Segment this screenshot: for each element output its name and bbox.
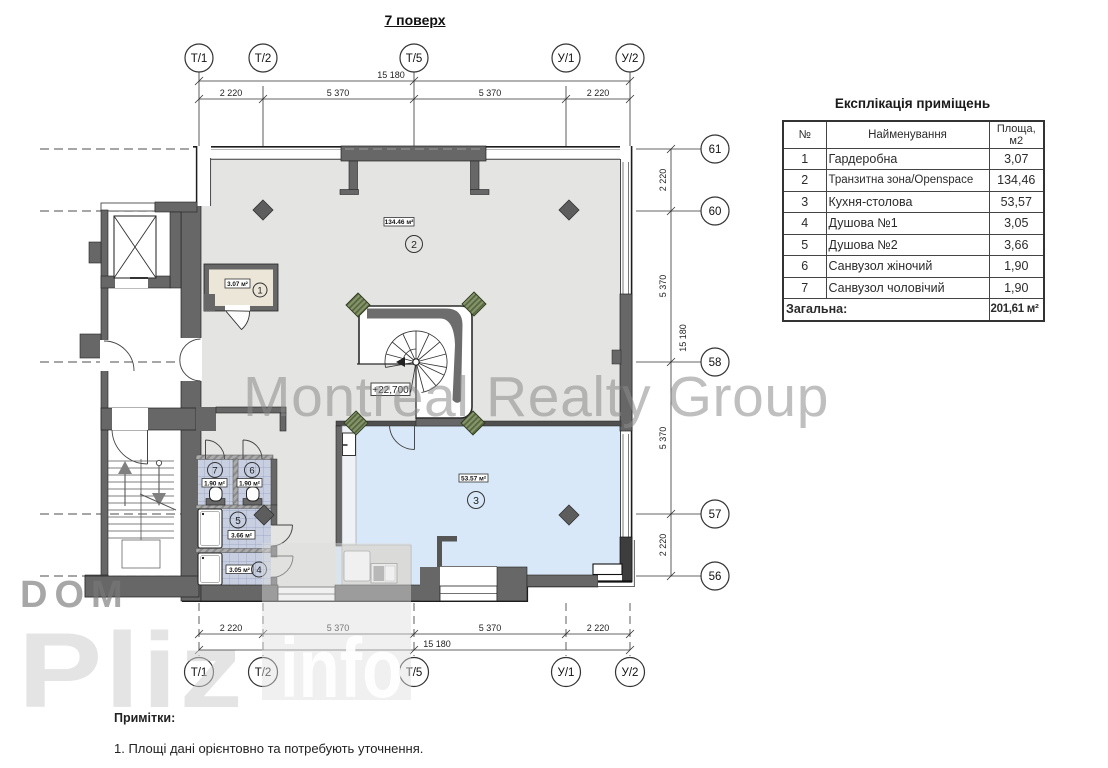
svg-text:134.46 м²: 134.46 м²: [385, 219, 414, 226]
svg-text:2 220: 2 220: [658, 169, 668, 192]
svg-text:15 180: 15 180: [377, 70, 405, 80]
svg-text:2 220: 2 220: [587, 88, 610, 98]
svg-text:4: 4: [256, 565, 261, 576]
svg-text:У/1: У/1: [558, 667, 575, 679]
svg-text:60: 60: [709, 206, 722, 218]
svg-text:2 220: 2 220: [658, 534, 668, 557]
svg-text:5 370: 5 370: [658, 427, 668, 450]
svg-text:2 220: 2 220: [587, 623, 610, 633]
svg-text:2 220: 2 220: [220, 88, 243, 98]
svg-text:3.07 м²: 3.07 м²: [227, 281, 248, 288]
svg-text:15 180: 15 180: [423, 639, 451, 649]
svg-text:53.57 м²: 53.57 м²: [461, 476, 487, 483]
svg-text:5: 5: [235, 516, 241, 527]
svg-text:1.90 м²: 1.90 м²: [204, 480, 225, 487]
svg-text:5 370: 5 370: [479, 88, 502, 98]
svg-text:5 370: 5 370: [658, 275, 668, 298]
svg-text:У/2: У/2: [622, 667, 639, 679]
svg-text:3.05 м²: 3.05 м²: [229, 567, 250, 574]
svg-text:5 370: 5 370: [327, 88, 350, 98]
svg-text:Т/5: Т/5: [406, 53, 423, 65]
svg-text:Т/1: Т/1: [191, 53, 208, 65]
svg-text:61: 61: [709, 144, 722, 156]
svg-text:У/2: У/2: [622, 53, 639, 65]
svg-text:5 370: 5 370: [479, 623, 502, 633]
svg-text:15 180: 15 180: [678, 324, 688, 352]
svg-text:2: 2: [411, 239, 417, 251]
svg-text:1.90 м²: 1.90 м²: [239, 480, 260, 487]
svg-text:1: 1: [257, 286, 262, 297]
svg-text:3: 3: [473, 495, 479, 507]
svg-text:6: 6: [249, 466, 254, 477]
svg-text:Т/2: Т/2: [255, 53, 272, 65]
svg-text:57: 57: [709, 509, 722, 521]
svg-text:7: 7: [212, 466, 217, 477]
svg-text:56: 56: [709, 571, 722, 583]
svg-text:3.66 м²: 3.66 м²: [231, 532, 252, 539]
svg-text:У/1: У/1: [558, 53, 575, 65]
